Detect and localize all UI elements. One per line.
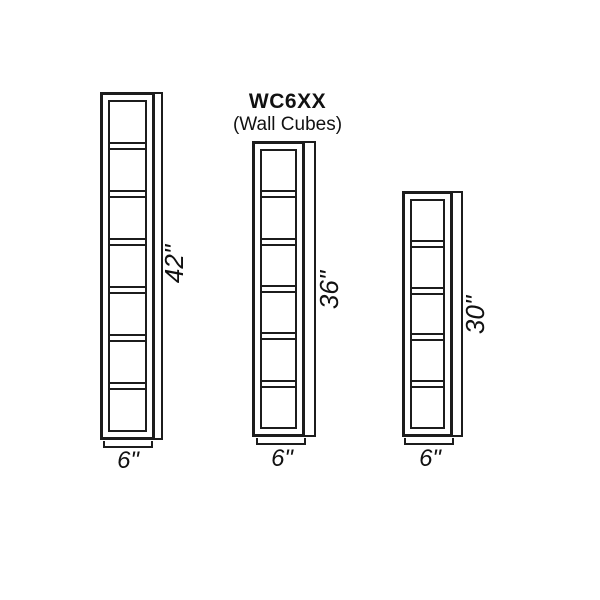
shelf-divider	[110, 382, 145, 390]
model-code: WC6XX	[205, 91, 370, 113]
width-dimension-label-30: 6"	[400, 447, 460, 471]
cabinet-36-outline	[252, 141, 305, 437]
cube-opening	[110, 294, 145, 334]
height-dimension-label-36: 36"	[316, 258, 346, 322]
cabinet-42-outline	[100, 92, 155, 440]
diagram-canvas: WC6XX (Wall Cubes) 42" 6" 36" 6" 30" 6"	[0, 0, 600, 600]
shelf-divider	[412, 380, 443, 388]
cabinet-30-frame	[410, 199, 445, 429]
cabinet-36-frame	[260, 149, 297, 429]
shelf-divider	[110, 142, 145, 150]
shelf-divider	[262, 285, 295, 293]
cube-opening	[262, 388, 295, 427]
cabinet-42-frame	[108, 100, 147, 432]
cube-opening	[412, 295, 443, 334]
cube-opening	[110, 150, 145, 190]
width-dimension-bracket-30	[404, 438, 454, 445]
cube-opening	[412, 248, 443, 287]
width-dimension-label-36: 6"	[252, 447, 312, 471]
shelf-divider	[412, 333, 443, 341]
shelf-divider	[412, 240, 443, 248]
cube-opening	[262, 293, 295, 332]
shelf-divider	[110, 190, 145, 198]
cube-opening	[110, 390, 145, 430]
shelf-divider	[262, 190, 295, 198]
cube-opening	[412, 341, 443, 380]
cube-opening	[262, 340, 295, 379]
cube-opening	[412, 201, 443, 240]
height-dimension-label-30: 30"	[462, 283, 492, 347]
shelf-divider	[262, 380, 295, 388]
shelf-divider	[110, 238, 145, 246]
shelf-divider	[262, 238, 295, 246]
cube-opening	[412, 388, 443, 427]
shelf-divider	[412, 287, 443, 295]
shelf-divider	[262, 332, 295, 340]
cube-opening	[262, 246, 295, 285]
cube-opening	[262, 198, 295, 237]
cube-opening	[110, 342, 145, 382]
cube-opening	[110, 102, 145, 142]
cabinet-30-outline	[402, 191, 453, 437]
cube-opening	[262, 151, 295, 190]
width-dimension-label-42: 6"	[98, 449, 158, 473]
width-dimension-bracket-36	[256, 438, 306, 445]
shelf-divider	[110, 334, 145, 342]
height-dimension-label-42: 42"	[161, 232, 191, 296]
shelf-divider	[110, 286, 145, 294]
title-block: WC6XX (Wall Cubes)	[205, 91, 370, 136]
model-subtitle: (Wall Cubes)	[205, 115, 370, 136]
cube-opening	[110, 198, 145, 238]
cube-opening	[110, 246, 145, 286]
